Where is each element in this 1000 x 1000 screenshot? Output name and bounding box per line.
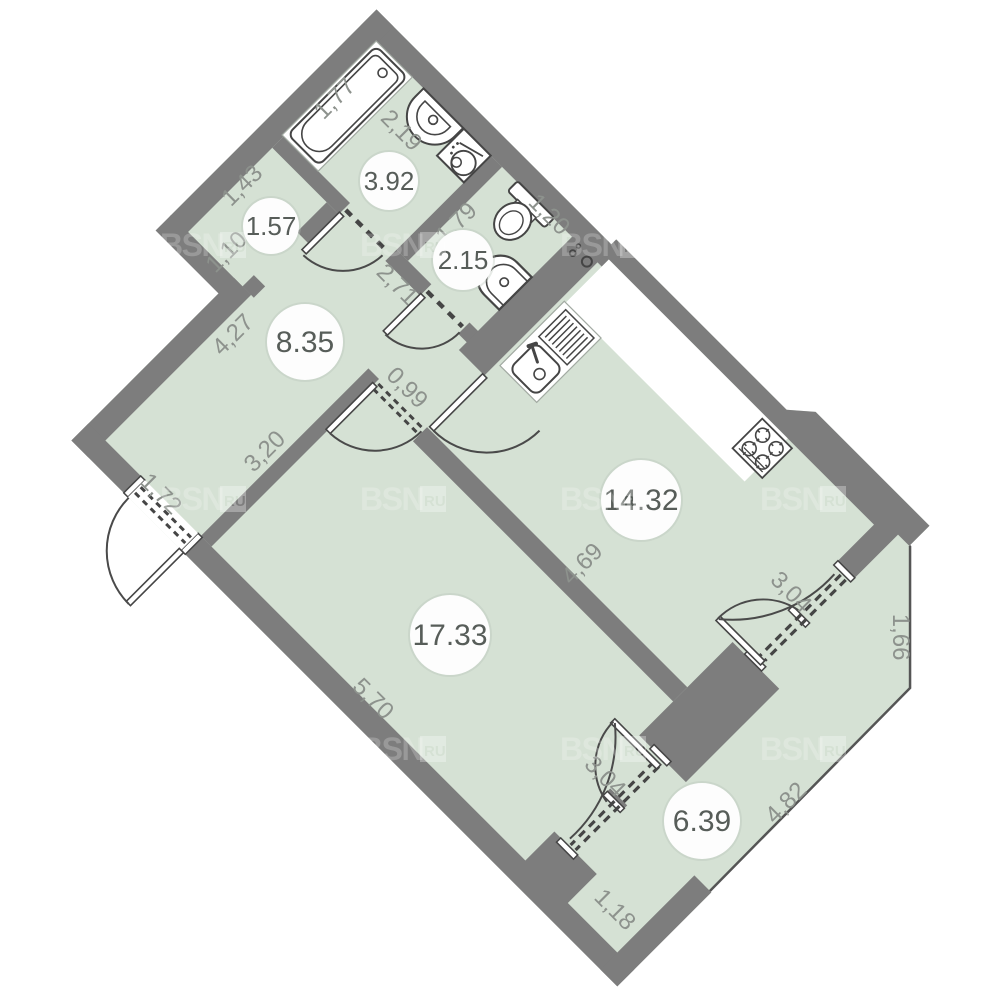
svg-text:1,66: 1,66 <box>887 614 914 661</box>
svg-text:8.35: 8.35 <box>276 326 334 359</box>
svg-text:1.57: 1.57 <box>246 211 297 241</box>
svg-text:17.33: 17.33 <box>412 619 487 652</box>
svg-text:3.92: 3.92 <box>364 166 415 196</box>
svg-text:6.39: 6.39 <box>673 805 731 838</box>
